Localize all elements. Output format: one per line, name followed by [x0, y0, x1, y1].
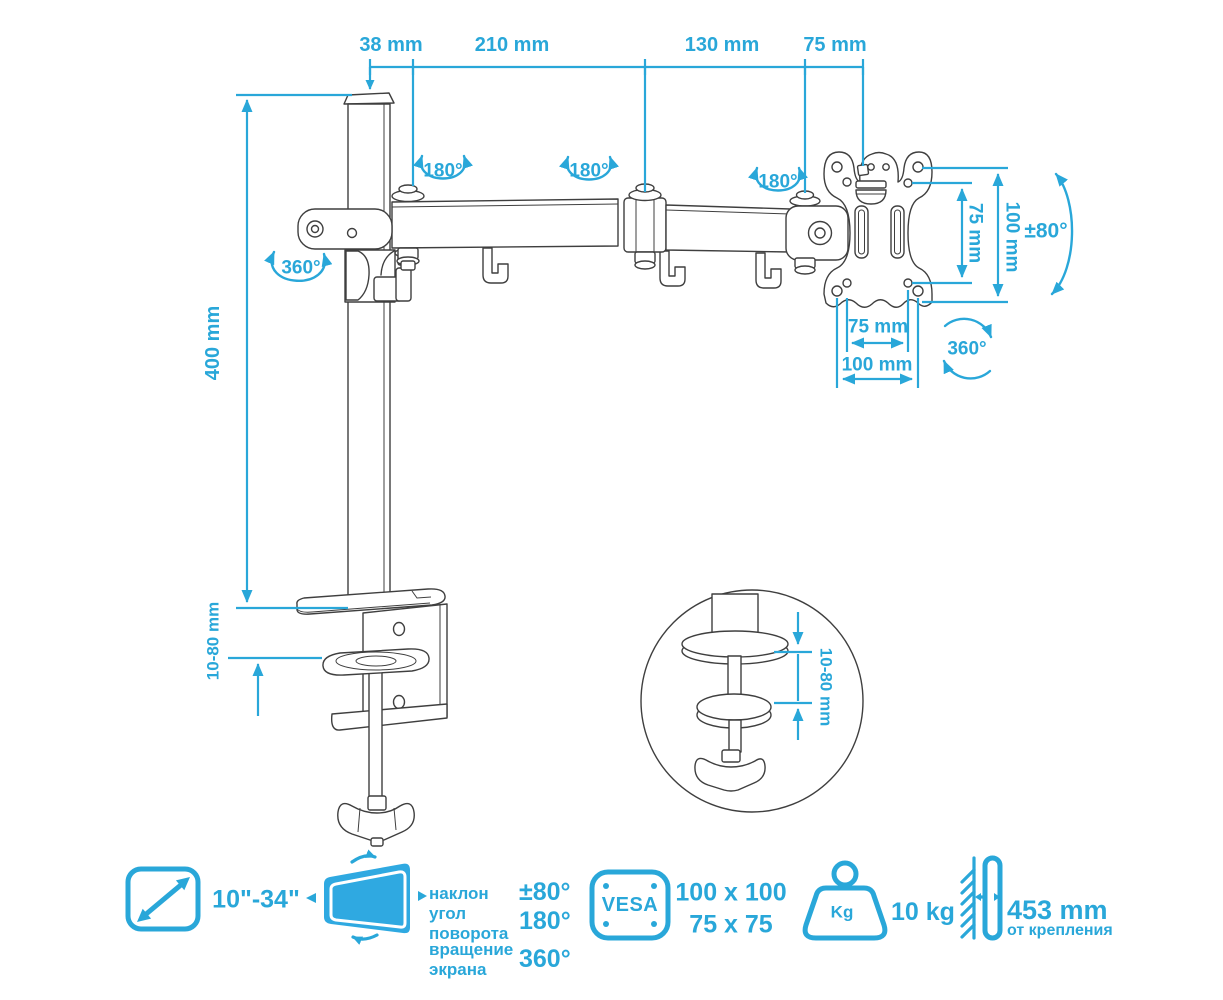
weight-icon — [805, 863, 885, 938]
technical-diagram-canvas: 38 mm 210 mm 130 mm 75 mm 180° 180° 180°… — [0, 0, 1223, 1000]
detail-desk-thickness-label: 10-80 mm — [818, 648, 835, 726]
desk-thickness-label: 10-80 mm — [205, 602, 222, 680]
line-art — [0, 0, 1223, 1000]
spec-swivel-label: угол поворота — [429, 904, 513, 943]
vesa-vertical-outer-label: 100 mm — [1003, 202, 1022, 273]
arm-reach-note-label: от крепления — [1007, 922, 1113, 940]
weight-unit-label: Kg — [831, 904, 854, 921]
vesa-vertical-inner-label: 75 mm — [966, 203, 985, 263]
screen-size-range: 10"-34" — [212, 888, 300, 913]
screen-tilt-label: ±80° — [1024, 221, 1067, 242]
spec-tilt-value: ±80° — [519, 878, 571, 907]
arm-reach-icon — [962, 858, 1000, 938]
joint1-rotation-label: 180° — [423, 162, 462, 181]
vesa-badge-label: VESA — [602, 895, 658, 915]
pole-drawing — [344, 93, 394, 604]
vesa-horizontal-inner-label: 75 mm — [848, 318, 908, 337]
joint2-rotation-label: 180° — [569, 162, 608, 181]
dim-75mm-top-label: 75 mm — [803, 35, 866, 55]
vesa-horizontal-outer-label: 100 mm — [842, 356, 913, 375]
max-load-label: 10 kg — [891, 898, 955, 927]
pole-height-label: 400 mm — [203, 306, 223, 381]
spec-swivel-value: 180° — [519, 907, 571, 936]
joint3-rotation-label: 180° — [758, 173, 797, 192]
spec-rotation-label: вращение экрана — [429, 940, 521, 979]
screen-size-icon — [128, 869, 198, 929]
dim-38mm-label: 38 mm — [359, 35, 422, 55]
dim-130mm-label: 130 mm — [685, 35, 760, 55]
tilt-screen-icon — [306, 856, 427, 939]
clamp-drawing — [297, 589, 447, 846]
vesa-rotation-label: 360° — [947, 340, 986, 359]
vesa-pattern-100: 100 x 100 — [675, 881, 786, 906]
spec-tilt-label: наклон — [429, 884, 489, 904]
pole-swivel-label: 360° — [281, 259, 320, 278]
vesa-pattern-75: 75 x 75 — [689, 913, 772, 938]
dim-210mm-label: 210 mm — [475, 35, 550, 55]
spec-rotation-value: 360° — [519, 945, 571, 974]
